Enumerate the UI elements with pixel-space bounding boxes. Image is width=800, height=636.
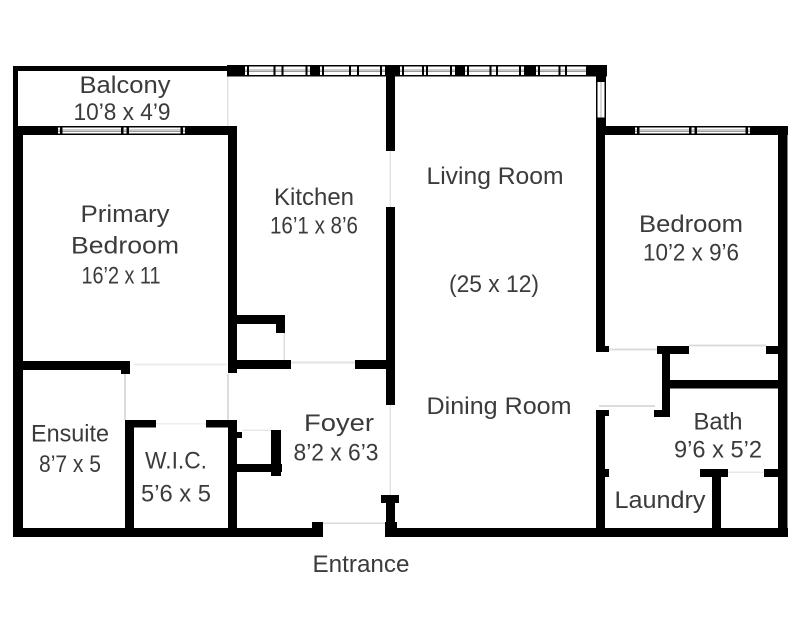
svg-text:Living Room: Living Room — [427, 163, 564, 190]
svg-text:Balcony: Balcony — [80, 72, 171, 99]
svg-text:16’2 x 11: 16’2 x 11 — [82, 263, 161, 290]
svg-text:Entrance: Entrance — [313, 551, 410, 578]
svg-text:16’1 x 8’6: 16’1 x 8’6 — [270, 213, 358, 240]
svg-text:Kitchen: Kitchen — [274, 184, 354, 211]
svg-text:Foyer: Foyer — [304, 410, 374, 437]
svg-text:Primary: Primary — [81, 201, 170, 228]
svg-text:10’2 x 9’6: 10’2 x 9’6 — [643, 240, 739, 267]
svg-text:W.I.C.: W.I.C. — [145, 448, 207, 475]
svg-text:10’8 x 4’9: 10’8 x 4’9 — [74, 99, 171, 126]
svg-text:8’2 x 6’3: 8’2 x 6’3 — [294, 440, 379, 467]
svg-text:Bedroom: Bedroom — [639, 211, 743, 238]
svg-text:Bath: Bath — [694, 409, 743, 436]
svg-text:Bedroom: Bedroom — [71, 233, 179, 260]
svg-text:8’7 x 5: 8’7 x 5 — [39, 451, 101, 478]
svg-text:(25 x 12): (25 x 12) — [449, 271, 539, 298]
svg-text:Laundry: Laundry — [615, 487, 706, 514]
svg-text:5’6 x 5: 5’6 x 5 — [141, 481, 211, 508]
svg-text:Dining Room: Dining Room — [427, 393, 572, 420]
svg-text:Ensuite: Ensuite — [31, 421, 109, 448]
svg-text:9’6 x 5’2: 9’6 x 5’2 — [674, 437, 762, 464]
